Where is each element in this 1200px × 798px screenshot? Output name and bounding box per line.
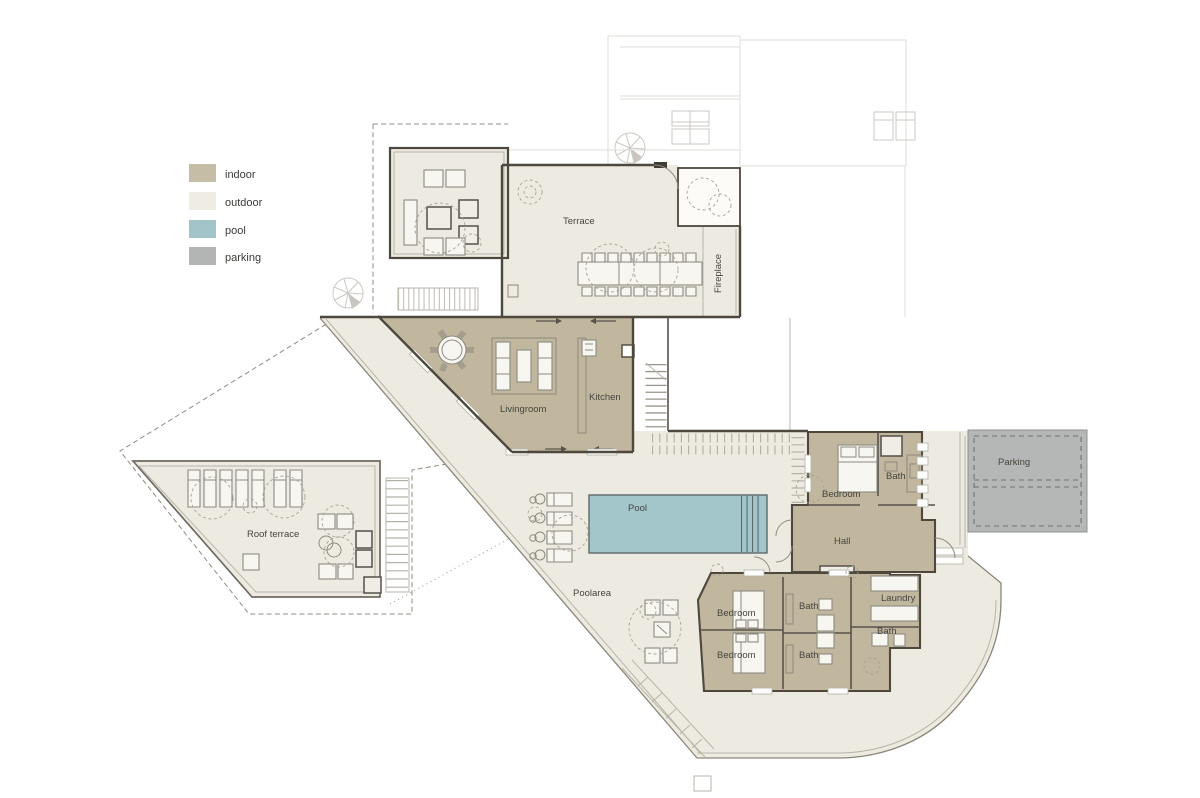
master-bed	[838, 445, 877, 492]
parking-pad	[968, 430, 1087, 532]
roof-stairs-outline	[386, 478, 409, 592]
legend-swatch-pool	[189, 220, 216, 238]
pool-label: Pool	[628, 503, 647, 514]
exit-step-1	[933, 548, 963, 555]
legend-label-indoor: indoor	[225, 169, 256, 181]
roof-corner-box	[364, 577, 381, 593]
legend-label-outdoor: outdoor	[225, 197, 263, 209]
top-right-room	[678, 168, 740, 226]
exit-step-2	[933, 557, 963, 564]
parking-label: Parking	[998, 457, 1030, 468]
wardrobe	[881, 436, 902, 456]
roof-terrace-label: Roof terrace	[247, 529, 299, 540]
upper-right-outline	[740, 40, 906, 166]
legend-swatch-parking	[189, 247, 216, 265]
bath-master-label: Bath	[886, 471, 906, 482]
stair-strip	[333, 278, 478, 310]
spiral-stair-icon	[333, 278, 363, 309]
kitchen-label: Kitchen	[589, 392, 621, 403]
laundry-label: Laundry	[881, 593, 916, 604]
dining-table-group	[578, 253, 702, 296]
bath-1-label: Bath	[799, 601, 819, 612]
floor-plan-drawing: Terrace Fireplace Livingroom Kitchen Poo…	[0, 0, 1200, 798]
livingroom-label: Livingroom	[500, 404, 547, 415]
upper-floor-lines	[620, 47, 740, 99]
dining-chairs-top	[582, 253, 696, 262]
floor-plan-page: Terrace Fireplace Livingroom Kitchen Poo…	[0, 0, 1200, 798]
stove	[582, 340, 596, 356]
terrace-label: Terrace	[563, 216, 595, 227]
dining-table	[578, 262, 702, 285]
stairwell	[646, 363, 666, 430]
legend-label-pool: pool	[225, 225, 246, 237]
pool	[589, 495, 767, 553]
legend-label-parking: parking	[225, 252, 261, 264]
legend-swatch-outdoor	[189, 192, 216, 210]
bedroom-wing-right	[792, 432, 935, 572]
lounge-table	[427, 207, 451, 229]
parking-area	[968, 430, 1087, 532]
upper-spiral-stair-icon	[615, 133, 645, 164]
bedroom-master-label: Bedroom	[822, 489, 861, 500]
legend: indoor outdoor pool parking	[189, 164, 263, 265]
straight-stairs-outline	[398, 288, 478, 310]
roof-loungers	[188, 470, 302, 507]
fireplace-label: Fireplace	[713, 254, 724, 293]
upper-sofa-group	[672, 111, 709, 144]
poolarea-label: Poolarea	[573, 588, 612, 599]
bedroom-2-label: Bedroom	[717, 650, 756, 661]
bath-hall-label: Bath	[877, 626, 897, 637]
bedroom-1-label: Bedroom	[717, 608, 756, 619]
roof-side-table	[243, 554, 259, 570]
lounge-room	[390, 148, 508, 258]
roof-overhang-line	[740, 166, 905, 317]
dining-chairs-bottom	[582, 287, 696, 296]
legend-swatch-indoor	[189, 164, 216, 182]
hall-label: Hall	[834, 536, 850, 547]
upper-loungers	[874, 112, 915, 140]
bath-2-label: Bath	[799, 650, 819, 661]
